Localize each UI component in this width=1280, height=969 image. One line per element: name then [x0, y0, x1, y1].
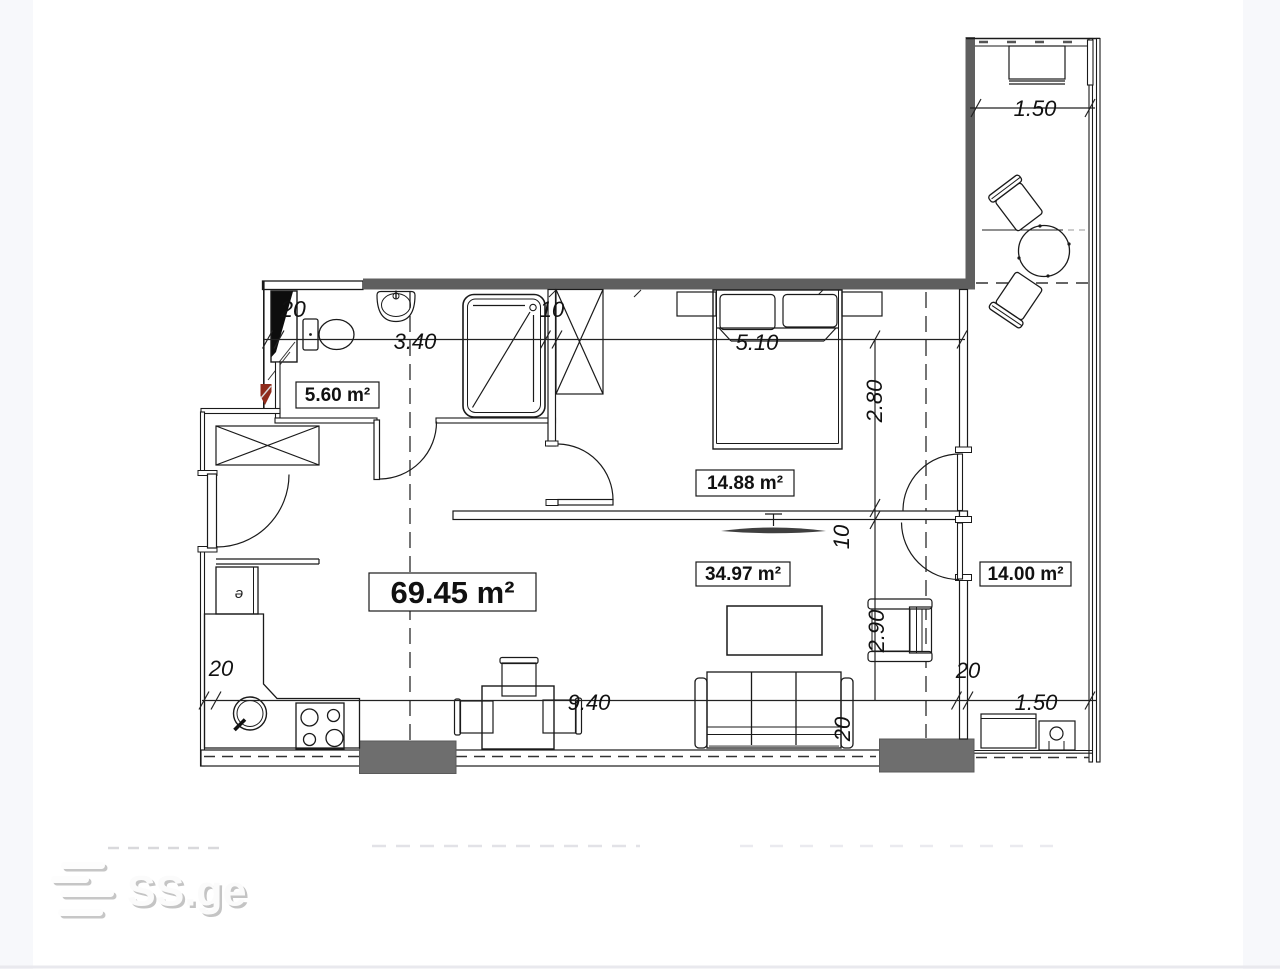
svg-text:SS.ge: SS.ge	[127, 868, 247, 916]
svg-text:10: 10	[829, 524, 854, 549]
svg-text:14.00 m²: 14.00 m²	[987, 564, 1063, 585]
svg-text:2.90: 2.90	[864, 609, 889, 654]
svg-text:69.45 m²: 69.45 m²	[390, 575, 514, 610]
svg-text:20: 20	[279, 296, 306, 322]
svg-text:9.40: 9.40	[568, 690, 612, 715]
svg-text:10: 10	[540, 297, 565, 322]
svg-text:2.80: 2.80	[862, 379, 887, 424]
svg-text:34.97 m²: 34.97 m²	[705, 564, 781, 585]
svg-text:14.88 m²: 14.88 m²	[707, 473, 783, 494]
svg-text:20: 20	[208, 656, 234, 681]
svg-text:20: 20	[830, 716, 855, 742]
svg-text:5.10: 5.10	[736, 330, 780, 355]
svg-text:1.50: 1.50	[1014, 96, 1058, 121]
svg-text:20: 20	[955, 658, 981, 683]
svg-text:3.40: 3.40	[394, 329, 438, 354]
svg-text:1.50: 1.50	[1015, 690, 1059, 715]
svg-text:ə: ə	[235, 585, 243, 602]
svg-text:5.60 m²: 5.60 m²	[305, 385, 370, 406]
